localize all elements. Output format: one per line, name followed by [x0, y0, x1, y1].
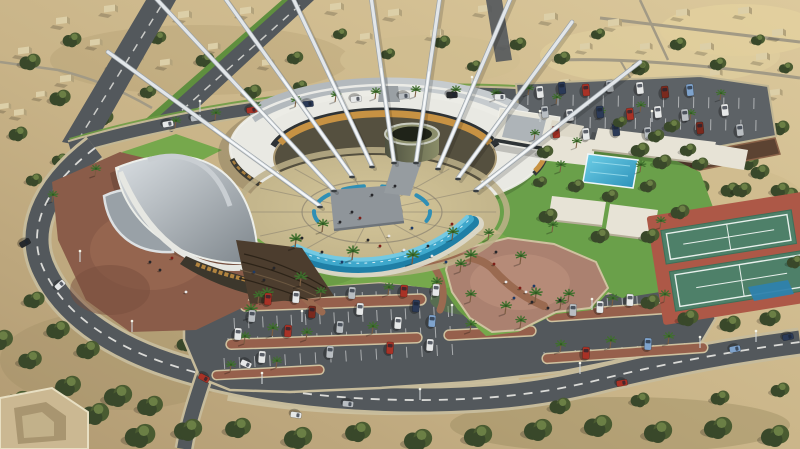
stall-line — [224, 358, 225, 369]
stall-line — [377, 310, 378, 321]
stall-line — [285, 354, 286, 365]
stall-line — [376, 349, 377, 360]
stall-line — [291, 315, 292, 326]
stall-line — [348, 312, 349, 323]
render-canvas — [0, 0, 800, 449]
stall-line — [435, 327, 436, 338]
stall-line — [406, 347, 407, 358]
stall-line — [263, 316, 264, 327]
stall-line — [391, 309, 392, 320]
stall-line — [300, 353, 301, 364]
stall-line — [422, 346, 423, 357]
stall-line — [315, 352, 316, 363]
stall-line — [334, 312, 335, 323]
stall-line — [452, 344, 453, 355]
stall-line — [270, 355, 271, 366]
aerial-render-scene — [0, 0, 800, 449]
stall-line — [361, 350, 362, 361]
stall-line — [239, 357, 240, 368]
stall-line — [437, 345, 438, 356]
stall-line — [419, 308, 420, 319]
swimming-pool — [583, 154, 638, 188]
stall-line — [405, 308, 406, 319]
stall-line — [234, 318, 235, 329]
stall-line — [346, 351, 347, 362]
stall-line — [254, 356, 255, 367]
